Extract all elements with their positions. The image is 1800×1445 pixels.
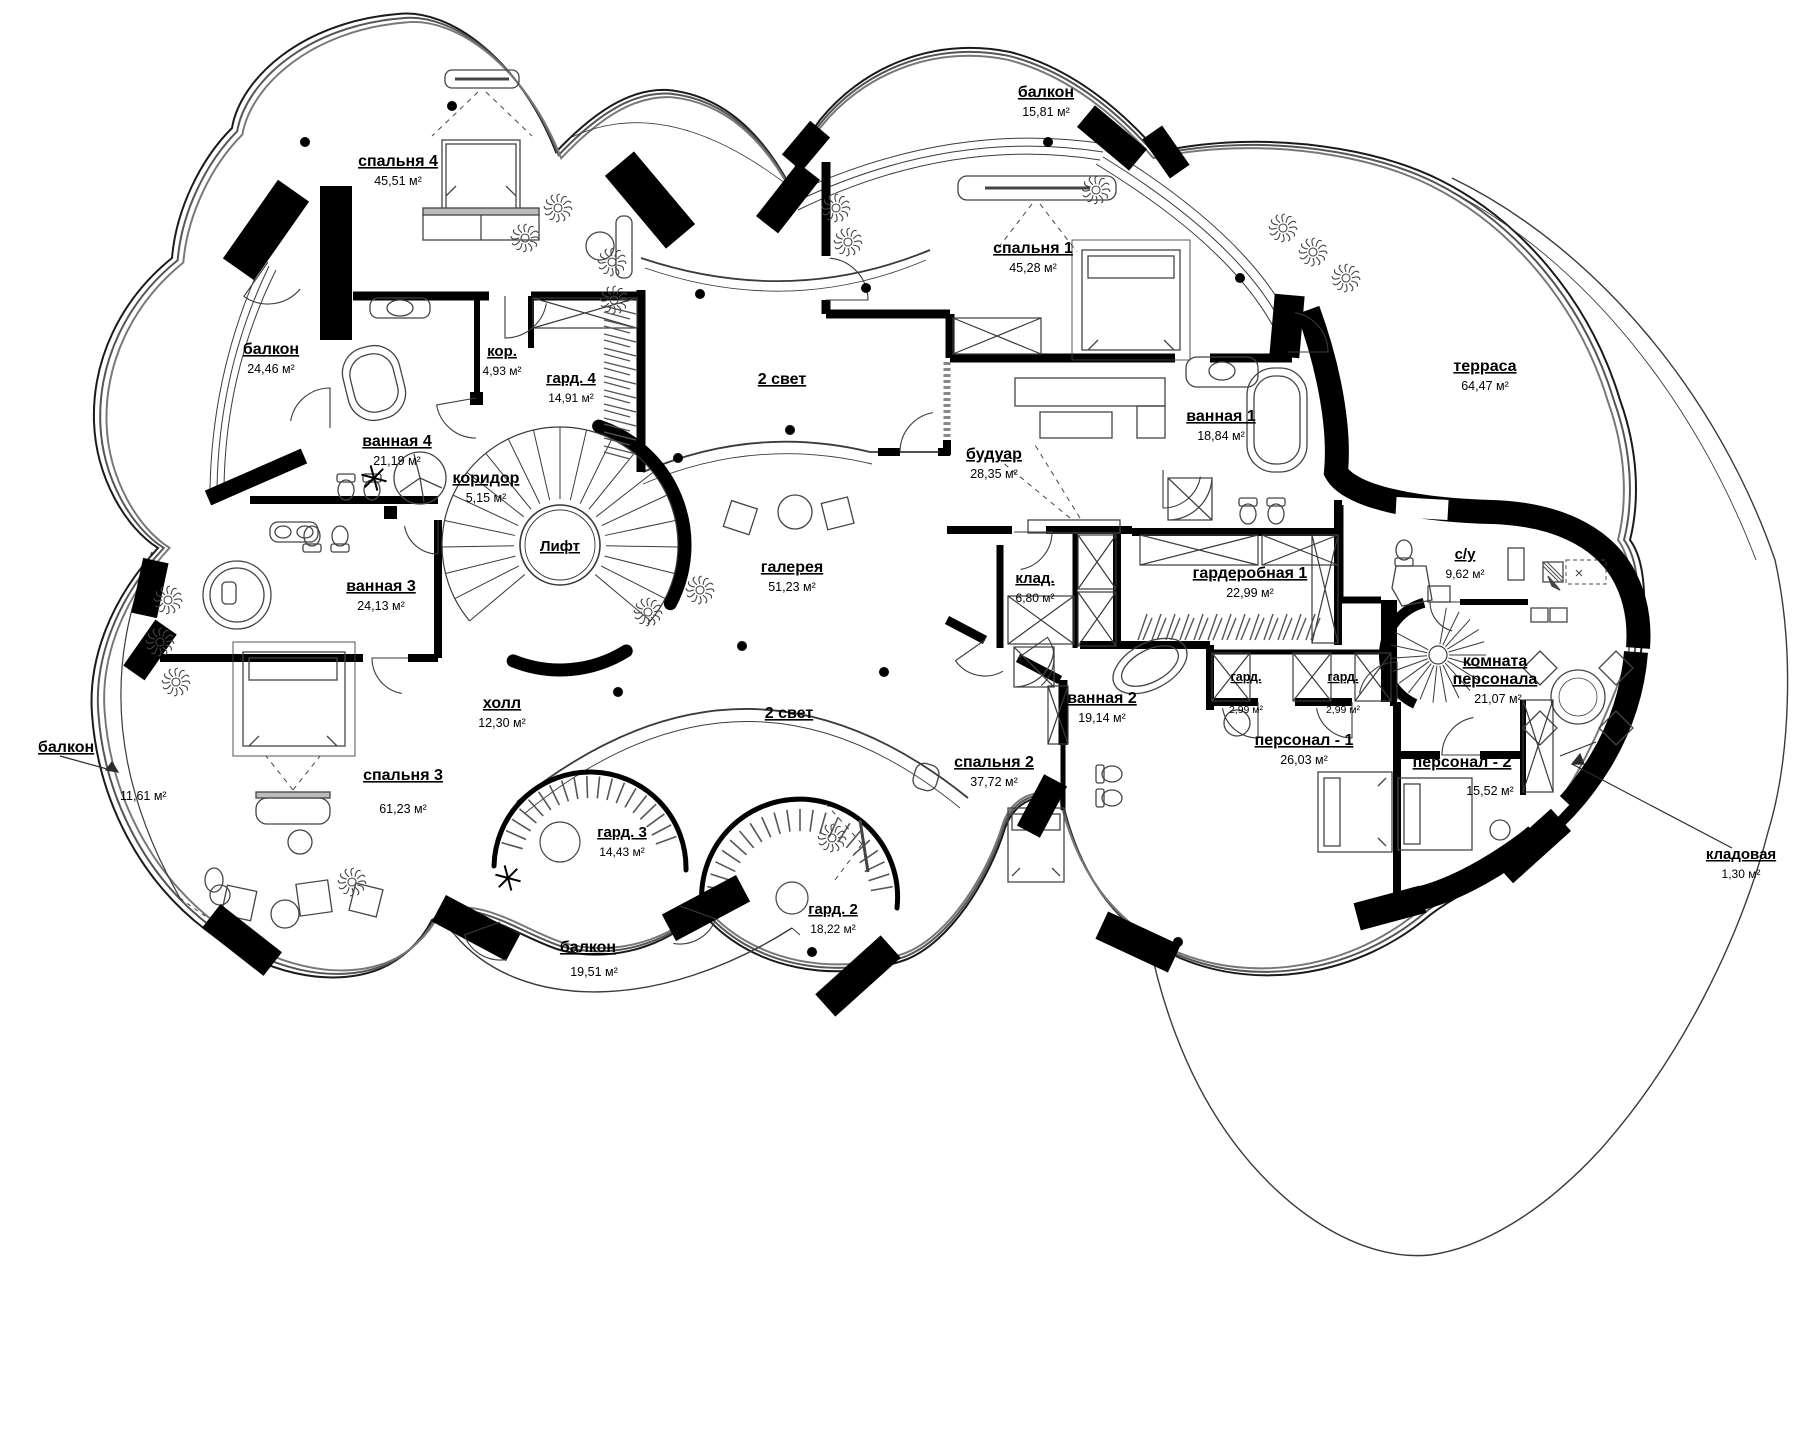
room-label: будуар28,35 м² — [966, 446, 1022, 481]
room-area: 1,30 м² — [1722, 867, 1761, 881]
room-name: Лифт — [540, 538, 580, 555]
room-label: холл12,30 м² — [478, 695, 526, 730]
door-swings — [244, 258, 1480, 960]
chair-bedroom2 — [911, 761, 941, 793]
room-label: персонал - 215,52 м² — [1413, 754, 1514, 798]
room-name: с/у — [1455, 546, 1477, 563]
room-area: 11,61 м² — [120, 789, 167, 803]
room-area: 5,15 м² — [466, 491, 507, 505]
plant-icon — [338, 868, 366, 896]
room-name: спальня 2 — [954, 754, 1034, 771]
floor-plan-page: спальня 445,51 м²балкон15,81 м²спальня 1… — [0, 0, 1800, 1445]
room-label: гардеробная 122,99 м² — [1193, 565, 1308, 600]
stool-staff2 — [1490, 820, 1510, 840]
room-name: балкон — [243, 341, 299, 358]
room-label: Лифт — [540, 538, 580, 555]
room-label: ванная 118,84 м² — [1186, 408, 1256, 443]
room-area: 15,52 м² — [1466, 784, 1514, 798]
toilet-icon — [1395, 540, 1413, 566]
room-label: спальня 237,72 м² — [954, 754, 1034, 789]
toilet-icon — [1267, 498, 1285, 524]
plant-icon — [818, 824, 846, 852]
room-area: 51,23 м² — [768, 580, 816, 594]
room-label: комнатаперсонала21,07 м² — [1453, 653, 1538, 706]
room-name: ванная 3 — [346, 578, 416, 595]
room-name: гард. 2 — [808, 901, 858, 918]
room-area: 61,23 м² — [379, 802, 427, 816]
room-name: спальня 3 — [363, 767, 443, 784]
room-label: гард. 314,43 м² — [597, 824, 647, 859]
room-name: ванная 4 — [362, 433, 432, 450]
su-fixtures — [1392, 548, 1606, 622]
bathroom3-fixtures — [203, 522, 318, 629]
room-area: 2,99 м² — [1326, 704, 1361, 716]
room-area: 64,47 м² — [1461, 379, 1509, 393]
room-label: ванная 421,19 м² — [362, 433, 432, 468]
room-label: ванная 324,13 м² — [346, 578, 416, 613]
bed-staff2 — [1398, 778, 1472, 850]
room-name: галерея — [761, 559, 823, 576]
toilet-icon — [1239, 498, 1257, 524]
sofa-boudoir — [1015, 378, 1165, 438]
room-label: гард. 414,91 м² — [546, 370, 596, 405]
toilet-icon — [331, 526, 349, 552]
room-label: с/у9,62 м² — [1446, 546, 1485, 581]
room-label: персонал - 126,03 м² — [1255, 732, 1354, 767]
room-label: гард. 218,22 м² — [808, 901, 858, 936]
room-area: 24,13 м² — [357, 599, 405, 613]
plant-icon — [686, 576, 714, 604]
room-name: гард. 4 — [546, 370, 596, 387]
room-name: 2 свет — [758, 371, 807, 388]
room-name: гард. — [1328, 670, 1359, 684]
floor-plan-drawing: спальня 445,51 м²балкон15,81 м²спальня 1… — [0, 0, 1800, 1445]
room-area: 18,84 м² — [1197, 429, 1245, 443]
room-area: 45,28 м² — [1009, 261, 1057, 275]
room-area: 15,81 м² — [1022, 105, 1070, 119]
room-name: персонала — [1453, 671, 1538, 688]
room-area: 28,35 м² — [970, 467, 1018, 481]
bathroom4-fixtures — [337, 298, 446, 504]
room-area: 4,93 м² — [483, 364, 522, 378]
plant-icon — [1299, 238, 1327, 266]
room-name: гард. — [1231, 670, 1262, 684]
tv-console-bedroom4 — [432, 70, 532, 136]
room-name: спальня 1 — [993, 240, 1073, 257]
room-label: спальня 361,23 м² — [363, 767, 443, 816]
room-name: будуар — [966, 446, 1022, 463]
desk-bedroom3 — [256, 756, 330, 854]
room-name: гардеробная 1 — [1193, 565, 1308, 582]
room-label: терраса64,47 м² — [1453, 358, 1516, 393]
room-area: 26,03 м² — [1280, 753, 1328, 767]
plant-icon — [162, 668, 190, 696]
room-name: персонал - 1 — [1255, 732, 1354, 749]
gallery-seating — [723, 495, 854, 535]
room-name: коридор — [453, 470, 520, 487]
room-label: галерея51,23 м² — [761, 559, 823, 594]
room-label: кладовая1,30 м² — [1706, 846, 1776, 881]
toilet-icon — [1096, 765, 1122, 783]
bed-bedroom4 — [423, 140, 539, 240]
room-area: 19,14 м² — [1078, 711, 1126, 725]
room-name: 2 свет — [765, 705, 814, 722]
plant-icon — [1332, 264, 1360, 292]
room-label: клад.6,80 м² — [1015, 570, 1054, 605]
room-label: гард.2,99 м² — [1229, 670, 1264, 716]
room-area: 14,43 м² — [599, 845, 645, 859]
room-area: 14,91 м² — [548, 391, 594, 405]
room-label: кор.4,93 м² — [483, 343, 522, 378]
interior-walls — [160, 162, 1638, 905]
bed-bedroom1 — [1072, 240, 1190, 360]
room-name: холл — [483, 695, 521, 712]
bed-staff1 — [1318, 772, 1392, 852]
room-name: клад. — [1015, 570, 1054, 587]
closet-domes — [494, 772, 898, 914]
room-name: спальня 4 — [358, 153, 438, 170]
room-area: 22,99 м² — [1226, 586, 1274, 600]
plant-icon — [511, 224, 539, 252]
toilet-icon — [1096, 789, 1122, 807]
plant-icon — [1269, 214, 1297, 242]
room-name: кор. — [487, 343, 517, 360]
room-area: 12,30 м² — [478, 716, 526, 730]
room-name: ванная 1 — [1186, 408, 1256, 425]
room-area: 2,99 м² — [1229, 704, 1264, 716]
room-area: 45,51 м² — [374, 174, 422, 188]
room-name: персонал - 2 — [1413, 754, 1512, 771]
room-label: ванная 219,14 м² — [1067, 690, 1137, 725]
room-area: 21,07 м² — [1474, 692, 1522, 706]
room-name: кладовая — [1706, 846, 1776, 863]
plant-icon — [544, 194, 572, 222]
room-area: 21,19 м² — [373, 454, 421, 468]
toilet-icons — [303, 474, 1413, 807]
room-area: 24,46 м² — [247, 362, 295, 376]
room-area: 18,22 м² — [810, 922, 856, 936]
room-label: балкон19,51 м² — [560, 939, 618, 979]
room-name: терраса — [1453, 358, 1516, 375]
room-label: спальня 145,28 м² — [993, 240, 1073, 275]
room-label: спальня 445,51 м² — [358, 153, 438, 188]
room-label: балкон24,46 м² — [243, 341, 299, 376]
room-name: балкон — [560, 939, 616, 956]
room-area: 37,72 м² — [970, 775, 1018, 789]
plant-icon — [834, 228, 862, 256]
room-label: 2 свет — [765, 705, 814, 722]
room-label: 2 свет — [758, 371, 807, 388]
room-name: комната — [1463, 653, 1528, 670]
room-name: гард. 3 — [597, 824, 647, 841]
room-area: 19,51 м² — [570, 965, 618, 979]
room-name: балкон — [1018, 84, 1074, 101]
room-area: 9,62 м² — [1446, 567, 1485, 581]
room-label: балкон15,81 м² — [1018, 84, 1074, 119]
room-area: 6,80 м² — [1016, 591, 1055, 605]
room-name: балкон — [38, 739, 94, 756]
room-name: ванная 2 — [1067, 690, 1137, 707]
